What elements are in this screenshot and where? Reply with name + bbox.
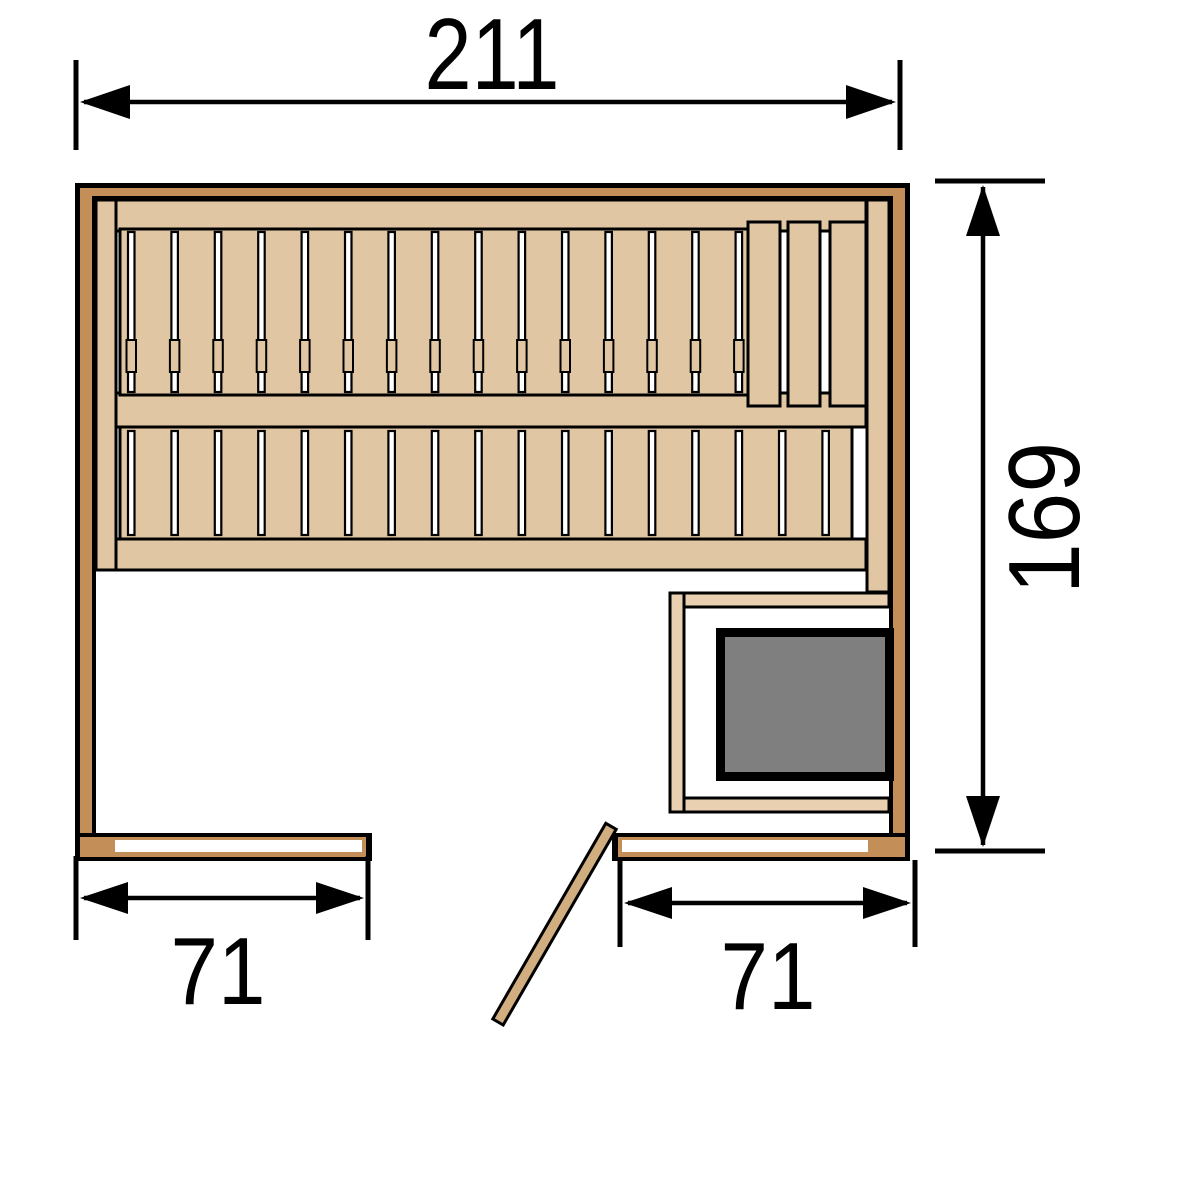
headrest-slat xyxy=(748,222,780,406)
slat-support-segment xyxy=(300,340,310,372)
front-wall-left-panel-slot xyxy=(115,840,362,852)
dim-label-overall-width: 211 xyxy=(425,0,560,111)
slat-support-segment xyxy=(647,340,657,372)
dim-label-right-segment: 71 xyxy=(721,923,816,1030)
dim-arrowhead-left xyxy=(80,85,130,119)
slat-support-segment xyxy=(430,340,440,372)
dim-arrowhead-right xyxy=(863,887,911,919)
heater-guard-left-bar xyxy=(670,593,684,812)
headrest-slat xyxy=(830,222,866,406)
slat-gap xyxy=(432,431,439,535)
heater-guard-bottom-bar xyxy=(670,798,889,812)
dimension-left-segment: 71 xyxy=(76,856,368,1025)
bench-upper-support-band xyxy=(127,340,744,372)
bench-side-plank-right xyxy=(867,200,889,592)
slat-gap xyxy=(345,431,352,535)
slat-support-segment xyxy=(387,340,397,372)
slat-gap xyxy=(388,431,395,535)
slat-support-segment xyxy=(604,340,614,372)
slat-gap xyxy=(475,431,482,535)
heater-guard-top-bar xyxy=(670,593,889,607)
slat-gap xyxy=(736,431,743,535)
slat-gap xyxy=(519,431,526,535)
slat-support-segment xyxy=(257,340,267,372)
slat-gap xyxy=(692,431,699,535)
dim-arrowhead-right xyxy=(846,85,896,119)
bench-rail-bottom xyxy=(116,539,866,570)
dim-arrowhead-left xyxy=(80,882,128,914)
slat-support-segment xyxy=(127,340,137,372)
dim-arrowhead-top xyxy=(966,185,1000,236)
dim-arrowhead-bottom xyxy=(966,796,1000,847)
heater xyxy=(725,637,885,772)
dimension-overall-width: 211 xyxy=(76,0,900,150)
dim-label-overall-depth: 169 xyxy=(989,442,1101,594)
slat-gap xyxy=(562,431,569,535)
dim-arrowhead-right xyxy=(316,882,364,914)
slat-gap xyxy=(302,431,309,535)
dim-arrowhead-left xyxy=(624,887,672,919)
bench-side-plank-left xyxy=(96,200,116,570)
slat-gap xyxy=(215,431,222,535)
dim-label-left-segment: 71 xyxy=(171,918,266,1025)
slat-gap xyxy=(649,431,656,535)
bench-headrest-slats xyxy=(748,222,866,406)
front-wall-right-panel-slot xyxy=(622,840,868,852)
slat-gap xyxy=(605,431,612,535)
slat-gap xyxy=(258,431,265,535)
sauna-floor-plan-drawing: 211 169 71 71 xyxy=(0,0,1200,1200)
slat-gap xyxy=(779,431,786,535)
slat-gap xyxy=(822,431,829,535)
sauna-plan-canvas: 211 169 71 71 xyxy=(0,0,1200,1200)
slat-gap xyxy=(128,431,135,535)
slat-support-segment xyxy=(734,340,744,372)
slat-support-segment xyxy=(344,340,354,372)
slat-support-segment xyxy=(170,340,180,372)
dimension-right-segment: 71 xyxy=(620,860,915,1030)
slat-support-segment xyxy=(517,340,527,372)
slat-support-segment xyxy=(213,340,223,372)
slat-gap xyxy=(171,431,178,535)
dimension-overall-depth: 169 xyxy=(935,181,1101,851)
slat-support-segment xyxy=(474,340,484,372)
headrest-slat xyxy=(788,222,820,406)
bench-assembly xyxy=(96,200,889,592)
slat-support-segment xyxy=(561,340,571,372)
slat-support-segment xyxy=(691,340,701,372)
door-opening xyxy=(372,826,612,868)
